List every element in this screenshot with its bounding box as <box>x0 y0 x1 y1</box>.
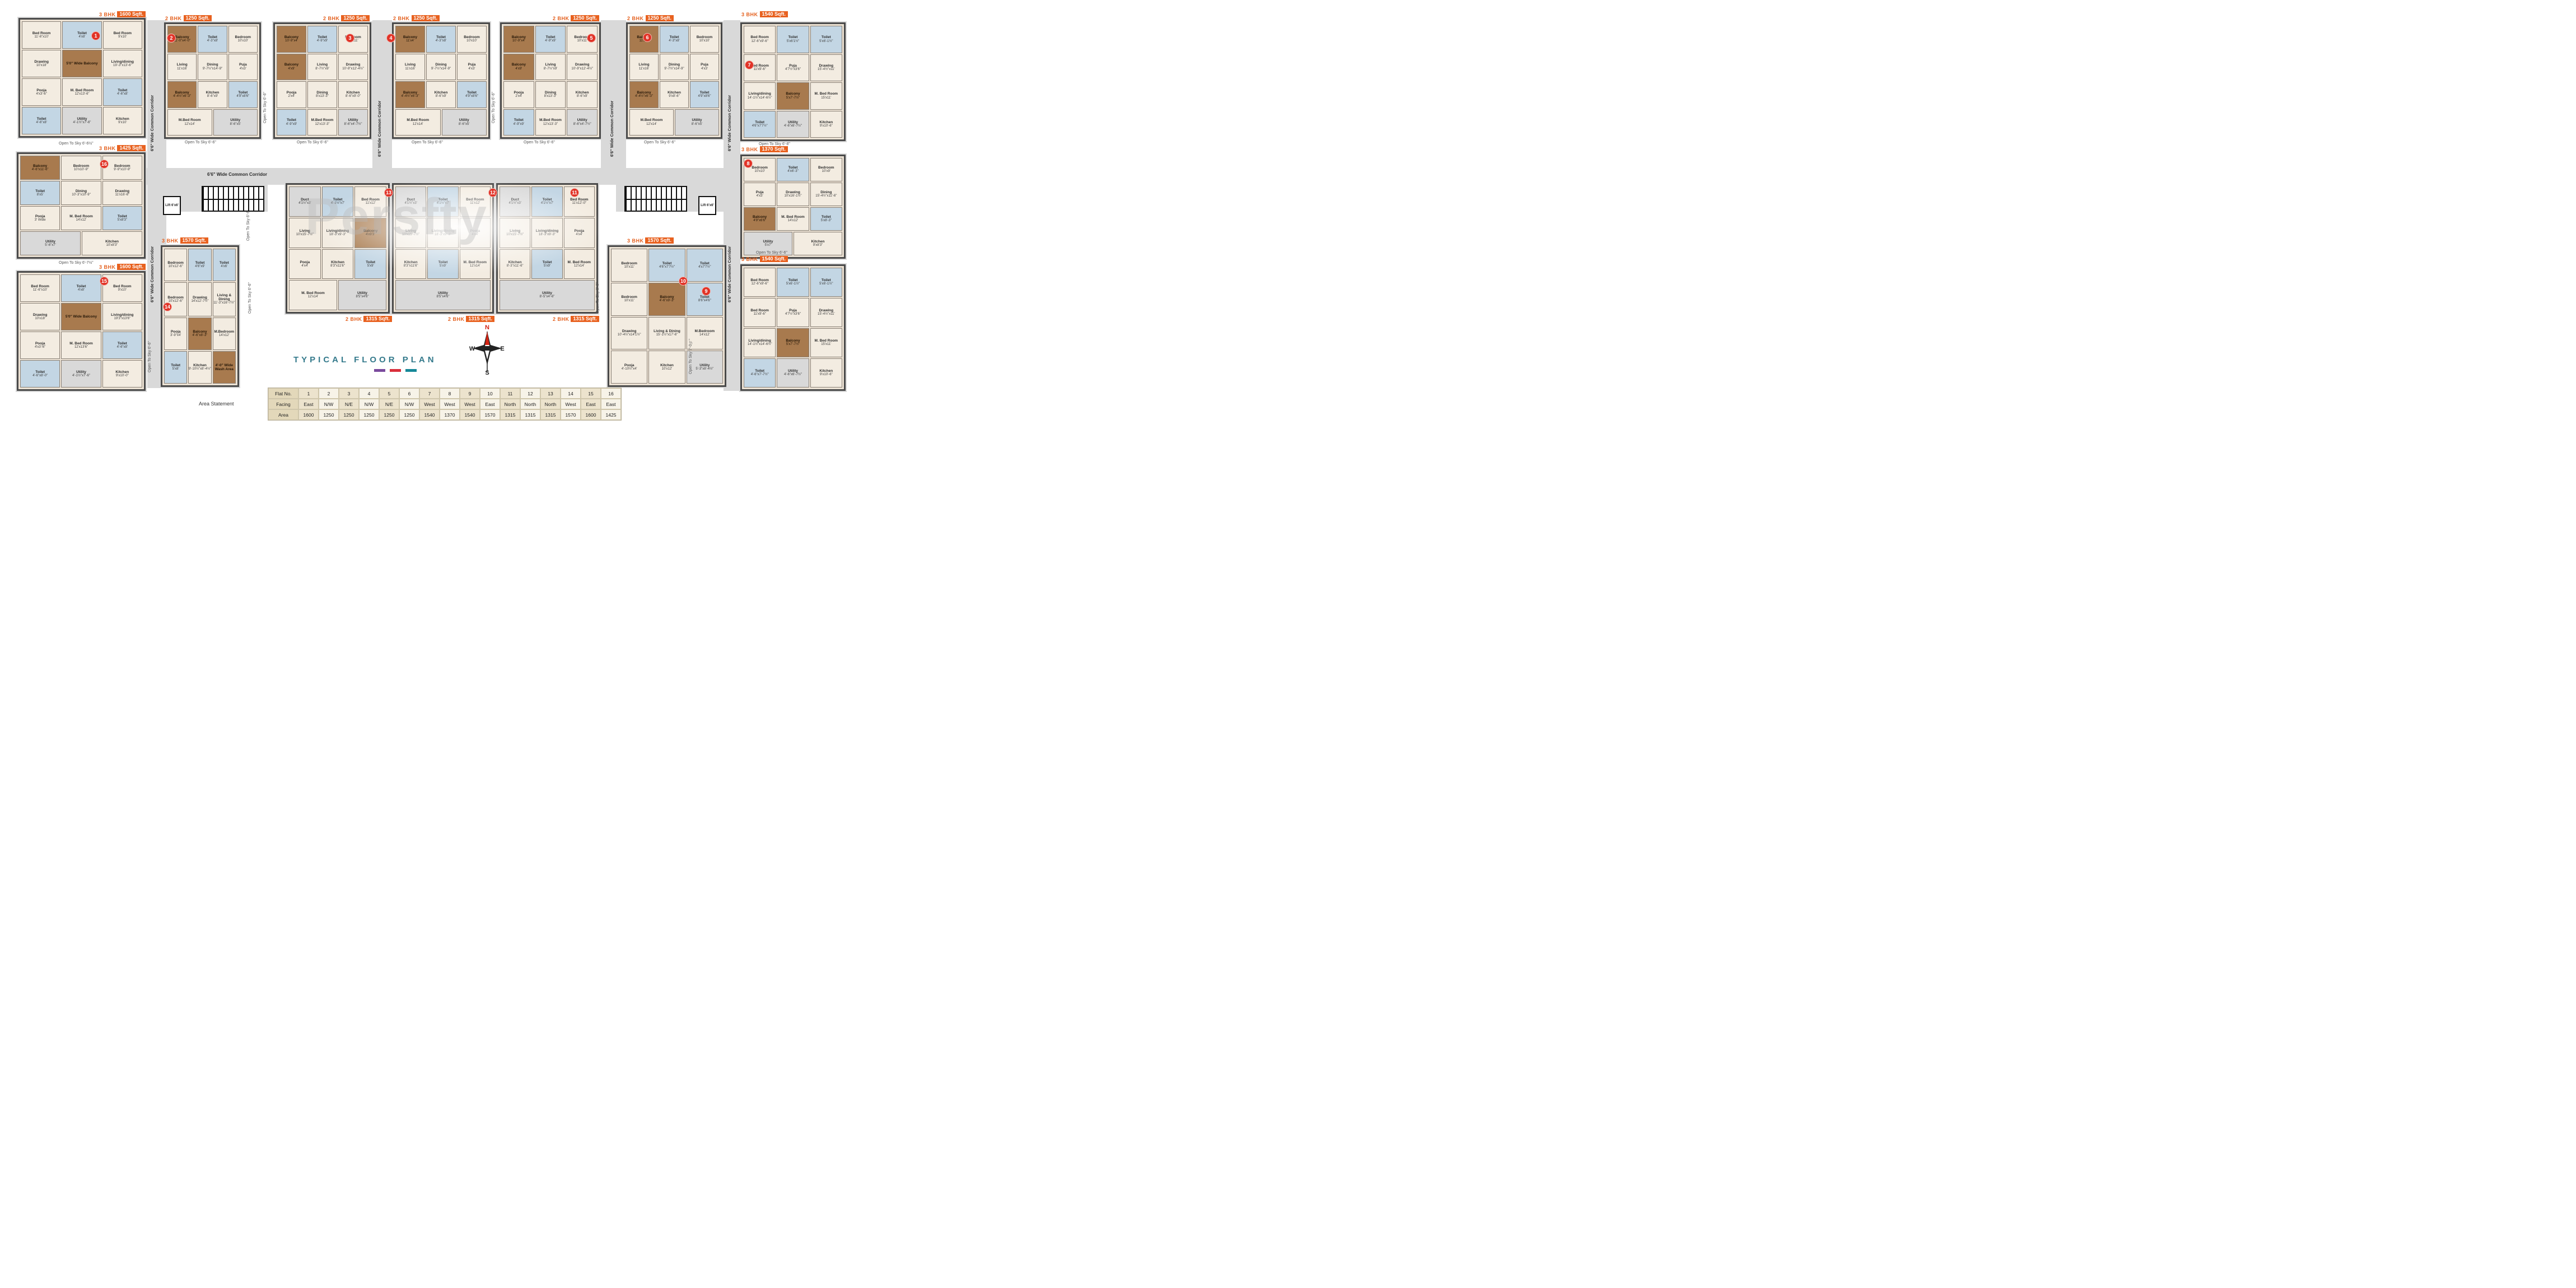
room-dimensions: 4'9"x8'6" <box>698 95 711 99</box>
room-name: Puja <box>239 63 247 67</box>
room-name: Pooja <box>624 363 634 367</box>
room-name: M.Bed Room <box>407 118 429 122</box>
room-utility: Utility4'-6"x6'-7½" <box>777 111 809 138</box>
room-dimensions: 4'-6"x8'-0" <box>32 374 48 378</box>
room-bedroom: Bedroom10'x9' <box>810 158 842 181</box>
unit-type: 3 BHK <box>741 147 758 152</box>
room-utility: Utility8'-6"x4'-7½" <box>567 109 598 136</box>
room-dimensions: 11'x12' <box>366 202 376 206</box>
room-name: Toilet <box>287 118 296 122</box>
room-name: Toilet <box>238 91 248 95</box>
room-dimensions: 4'-1½"x7'-6" <box>72 374 90 378</box>
room-bedroom: Bedroom10'x12'-6" <box>164 249 187 281</box>
room-name: Living/dining <box>536 229 558 233</box>
table-cell: 1600 <box>298 409 319 420</box>
room-dimensions: 12'x14' <box>184 123 195 127</box>
room-dimensions: 12'x14' <box>308 295 319 299</box>
room-drawing: Drawing11'x16'-6" <box>102 181 142 205</box>
room-dimensions: 4'x3'-6" <box>35 346 45 349</box>
open-to-sky-label: Open To Sky 6'-6" <box>148 305 152 372</box>
room-toilet: Toilet5'x6'1½" <box>777 26 809 53</box>
flat-number-badge-13: 13 <box>384 188 393 197</box>
room-dimensions: 8'-7½"x9' <box>315 67 329 71</box>
room-dimensions: 12'x13'-6" <box>74 92 89 96</box>
room-dimensions: 4'-10½"x4' <box>622 367 637 371</box>
table-cell: 1425 <box>601 409 621 420</box>
room-dimensions: 11'x9'-6" <box>754 312 766 316</box>
room-name: Toilet <box>37 117 46 121</box>
room-name: Utility <box>542 291 552 295</box>
page-title: TYPICAL FLOOR PLAN <box>293 355 437 365</box>
unit-sqft-badge: 1315 Sqft. <box>571 316 599 322</box>
room-dimensions: 9'x10'-6" <box>820 373 833 377</box>
unit-9-label: 3 BHK1540 Sqft. <box>741 256 788 262</box>
room-dimensions: 8'-3"x11'-6" <box>507 264 524 268</box>
unit-12-label: 2 BHK1315 Sqft. <box>408 316 494 322</box>
room-name: Toilet <box>118 214 127 218</box>
room-dimensions: 4'1½"x3' <box>298 202 311 206</box>
unit-type: 3 BHK <box>741 256 758 262</box>
table-cell: 6 <box>399 388 419 399</box>
room-name: Balcony <box>786 92 800 96</box>
room-dimensions: 4'-6"x8' <box>117 92 128 96</box>
table-cell: N/E <box>379 399 399 409</box>
room-name: M. Bed Room <box>815 92 838 96</box>
room-dimensions: 10'x18' <box>36 64 47 68</box>
room-dimensions: 4'1½"x7' <box>437 202 449 206</box>
room-name: Dining <box>316 91 328 95</box>
room-name: Living/dining <box>111 60 134 64</box>
unit-type: 2 BHK <box>448 316 465 322</box>
room-dimensions: 8'-6"x9'-0" <box>346 95 361 99</box>
flat-number-badge-6: 6 <box>643 33 652 42</box>
flat-number-badge-4: 4 <box>386 34 395 43</box>
room-kitchen: Kitchen9'-10½"x8'-4½" <box>188 351 211 384</box>
unit-4-rooms: Balcony11'x4'Toilet4'-3"x8'Bedroom10'x10… <box>394 24 488 137</box>
room-kitchen: Kitchen8'-6"x9'-0" <box>338 81 368 108</box>
room-name: Drawing <box>819 64 833 68</box>
room-name: M. Bed Room <box>69 214 93 218</box>
table-cell: 1250 <box>399 409 419 420</box>
room-name: Balcony <box>753 215 767 219</box>
room-toilet: Toilet5'x8'-3" <box>810 207 842 231</box>
unit-15: Bed Room11'-6"x10'Toilet4'x8'Bed Room9'x… <box>17 271 146 391</box>
unit-9-rooms: Bed Room12'-6"x9'-6"Toilet5'x6'-1½"Toile… <box>742 266 844 389</box>
room-m-bed-room: M. Bed Room12'x13'6" <box>61 332 101 359</box>
room-dimensions: 4'-3"x8' <box>207 39 218 43</box>
room-dimensions: 9'-9"x10'-9" <box>114 168 130 172</box>
room-name: M.Bedroom <box>214 330 234 334</box>
room-toilet: Toilet4'x8' <box>61 274 101 302</box>
room-bed-room: Bed Room11'x12' <box>354 186 386 217</box>
table-cell: 1315 <box>540 409 561 420</box>
table-cell: East <box>480 399 500 409</box>
room-dimensions: 18'-3"x9'-3" <box>435 233 451 237</box>
room-dimensions: 18'-3"x9'-3" <box>539 233 556 237</box>
room-dimensions: 11'x12' <box>470 202 480 206</box>
room-toilet: Toilet8'x5' <box>20 181 60 205</box>
unit-10-label: 3 BHK1570 Sqft. <box>587 237 674 244</box>
room-dimensions: 5'x9' <box>544 264 550 268</box>
room-pooja: Pooja4'x4' <box>460 218 491 248</box>
room-dimensions: 4'x7'7½" <box>698 265 711 269</box>
room-name: Toilet <box>77 31 87 35</box>
table-cell: 1 <box>298 388 319 399</box>
room-dimensions: 4'x6'-3" <box>787 170 798 174</box>
room-name: Toilet <box>35 370 45 374</box>
room-name: Pooja <box>470 229 480 233</box>
room-5-0-wide-balcony: 5'0" Wide Balcony <box>61 303 101 330</box>
room-dimensions: 11'x16' <box>177 67 187 71</box>
room-dimensions: 5'x8'-3" <box>821 219 832 223</box>
room-kitchen: Kitchen9'x10'-6" <box>810 358 842 388</box>
room-toilet: Toilet4'-6"x7'-7½" <box>744 358 776 388</box>
room-name: Puja <box>756 190 764 194</box>
room-utility: Utility4'-1½"x7'-6" <box>61 360 101 388</box>
unit-type: 3 BHK <box>741 12 758 17</box>
room-toilet: Toilet4'x6'-3" <box>777 158 809 181</box>
room-bedroom: Bedroom10'x11' <box>611 249 647 282</box>
table-row-header: Facing <box>268 399 298 409</box>
unit-9: Bed Room12'-6"x9'-6"Toilet5'x6'-1½"Toile… <box>740 264 846 391</box>
room-dimensions: 4'x3' <box>701 67 708 71</box>
room-living-dining: Living & Dining15'-1½"x17'-6" <box>648 317 685 350</box>
room-utility: Utility8'-6"x5' <box>442 109 487 136</box>
table-row-header: Area <box>268 409 298 420</box>
title-underline-red <box>390 369 401 372</box>
staircase-left-icon <box>202 186 264 212</box>
table-cell: North <box>540 399 561 409</box>
room-dimensions: 4'1½"x7' <box>541 202 553 206</box>
room-dimensions: 10'x15'-7½" <box>402 233 419 237</box>
room-living: Living11'x16' <box>629 54 659 81</box>
room-dimensions: 15'x11' <box>821 96 831 100</box>
room-name: Bedroom <box>621 262 637 265</box>
room-dining: Dining8'x13'-3" <box>535 81 566 108</box>
room-dimensions: 10'-9"x12'-4½" <box>571 67 593 71</box>
unit-12: Duct4'1½"x3'Toilet4'1½"x7'Bed Room11'x12… <box>392 183 494 314</box>
room-utility: Utility5'-6"x7' <box>20 231 81 255</box>
room-name: Balcony <box>284 63 298 67</box>
room-name: Toilet <box>220 261 229 265</box>
room-living-dining: Living/dining19'3"x13'6" <box>102 303 142 330</box>
room-name: Kitchen <box>116 117 129 121</box>
room-dimensions: 4'-9"x9' <box>514 123 524 127</box>
flat-number-badge-3: 3 <box>346 34 354 43</box>
room-bed-room: Bed Room11'x12'-0" <box>564 186 595 217</box>
room-toilet: Toilet4'-6"x8'-0" <box>20 360 60 388</box>
room-toilet: Toilet4'-1½"x7' <box>322 186 354 217</box>
unit-8-label: 3 BHK1370 Sqft. <box>741 146 788 152</box>
room-dimensions: 11'x16'-6" <box>115 193 129 197</box>
room-balcony: Balcony5'x7'-7½" <box>777 82 809 110</box>
unit-8-rooms: Bedroom10'x10'Toilet4'x6'-3"Bedroom10'x9… <box>742 156 844 257</box>
unit-11-rooms: Duct4'1½"x3'Toilet4'1½"x7'Bed Room11'x12… <box>498 185 596 312</box>
room-kitchen: Kitchen8'-3"x11'-6" <box>500 249 530 279</box>
room-name: M. Bed Room <box>69 342 93 346</box>
room-name: Drawing <box>575 63 590 67</box>
unit-14-rooms: Bedroom10'x12'-6"Toilet4'6"x9'Toilet4'x6… <box>162 247 237 385</box>
room-dimensions: 10'x15'-7½" <box>296 233 314 237</box>
room-balcony: Balcony10'-9"x4' <box>503 26 534 53</box>
room-duct: Duct4'1½"x3' <box>500 186 530 217</box>
room-living-dining: Living/dining14'-1½"x14'-6½" <box>744 82 776 110</box>
room-name: Toilet <box>755 120 764 124</box>
room-name: Living <box>545 63 556 67</box>
room-dimensions: 4'6"x7'7½" <box>752 124 768 128</box>
room-name: Balcony <box>512 35 526 39</box>
room-name: Toilet <box>366 260 375 264</box>
room-living: Living10'x15'-7½" <box>289 218 321 248</box>
corridor-horizontal <box>53 168 724 185</box>
room-name: Toilet <box>171 363 180 367</box>
room-m-bed-room: M.Bed Room12'x14' <box>395 109 441 136</box>
room-m-bed-room: M. Bed Room15'x11' <box>810 82 842 110</box>
room-name: Utility <box>459 118 469 122</box>
corridor-label: 6'6" Wide Common Corridor <box>377 67 382 157</box>
room-puja: Puja4'x3' <box>690 54 719 81</box>
room-balcony: Balcony5'x7'-7½" <box>777 328 809 357</box>
room-kitchen: Kitchen9'x10'-6" <box>810 111 842 138</box>
room-dimensions: 12'x13'-3" <box>315 123 329 127</box>
room-m-bed-room: M. Bed Room12'x14' <box>564 249 595 279</box>
room-m-bed-room: M. Bed Room14'x12' <box>777 207 809 231</box>
flat-number-badge-7: 7 <box>745 60 754 69</box>
room-dimensions: 3' Wide <box>35 218 46 222</box>
room-m-bed-room: M. Bed Room12'x14' <box>460 249 491 279</box>
room-living: Living10'x15'-7½" <box>395 218 426 248</box>
room-utility: Utility4'-1½"x7'-6" <box>62 107 101 134</box>
room-name: Utility <box>45 240 55 244</box>
room-pooja: Pooja4'x4' <box>564 218 595 248</box>
room-dimensions: 14'x12' <box>788 219 799 223</box>
room-name: Bedroom <box>235 35 251 39</box>
room-dimensions: 12'x13'6" <box>74 346 88 349</box>
room-name: Balcony <box>175 91 189 95</box>
room-name: Drawing <box>346 63 361 67</box>
room-utility: Utility4'-6"x6'-7½" <box>777 358 809 388</box>
room-name: Kitchen <box>404 260 418 264</box>
room-dimensions: 9'x10' <box>118 121 127 125</box>
room-dimensions: 15'x11' <box>821 343 831 347</box>
open-to-sky-label: Open To Sky 6'-6" <box>185 141 216 144</box>
room-dimensions: 4'x3' <box>469 67 475 71</box>
room-dimensions: 12'x13'-3" <box>543 123 558 127</box>
room-toilet: Toilet5'x9' <box>531 249 562 279</box>
table-cell: West <box>440 399 460 409</box>
room-pooja: Pooja2'x4' <box>277 81 306 108</box>
room-name: Living & Dining <box>214 293 235 301</box>
room-duct: Duct4'1½"x3' <box>289 186 321 217</box>
room-dimensions: 4'x9' <box>288 67 295 71</box>
room-dimensions: 10'x11' <box>624 299 634 303</box>
room-kitchen: Kitchen8'-6"x9' <box>567 81 598 108</box>
room-dimensions: 9'-7½"x14'-9" <box>664 67 684 71</box>
svg-text:N: N <box>485 324 489 331</box>
room-toilet: Toilet4'9"x8'6" <box>228 81 258 108</box>
room-living-dining: Living & Dining11'-3"x16'-7½" <box>213 282 236 316</box>
unit-5: Balcony10'-9"x4'Toilet4'-9"x9'Bedroom10'… <box>500 22 601 139</box>
room-name: Bedroom <box>752 166 768 170</box>
room-dimensions: 9'x8'-6" <box>669 95 679 99</box>
room-dimensions: 4'9"x8'6" <box>465 95 478 99</box>
room-dimensions: 10'x11' <box>577 39 587 43</box>
room-name: M. Bed Room <box>781 215 805 219</box>
room-name: Kitchen <box>435 91 448 95</box>
room-dining: Dining8'x13'-3" <box>307 81 337 108</box>
unit-11: Duct4'1½"x3'Toilet4'1½"x7'Bed Room11'x12… <box>496 183 598 314</box>
unit-sqft-badge: 1250 Sqft. <box>341 15 370 21</box>
room-pooja: Pooja3' Wide <box>20 206 60 230</box>
room-bedroom: Bedroom10'x11' <box>611 283 647 316</box>
room-dimensions: 5'x7'-7½" <box>786 343 800 347</box>
unit-sqft-badge: 1540 Sqft. <box>760 256 788 262</box>
open-to-sky-label: Open To Sky 6'-6" <box>263 56 267 123</box>
room-dimensions: 11'-0"x4'-0" <box>174 39 190 43</box>
room-balcony: Balcony4'x9' <box>503 54 534 81</box>
table-cell: 1315 <box>520 409 540 420</box>
room-name: Kitchen <box>347 91 360 95</box>
room-name: Balcony <box>193 330 207 334</box>
room-balcony: Balcony4'-4½"x6'-3" <box>167 81 197 108</box>
room-dimensions: 12'x14' <box>470 264 480 268</box>
room-dimensions: 14'-1½"x14'-6½" <box>748 96 772 100</box>
area-statement-label: Area Statement <box>199 401 234 407</box>
room-dimensions: 5'x6'-1½" <box>819 40 833 44</box>
room-utility: Utility8'-6"x4'-7½" <box>338 109 368 136</box>
room-name: Puja <box>468 63 476 67</box>
room-dimensions: 12'x14' <box>646 123 657 127</box>
table-cell: 1540 <box>419 409 440 420</box>
room-dimensions: 5'x7'-7½" <box>786 96 800 100</box>
unit-10-rooms: Bedroom10'x11'Toilet4'6"x7'7½"Toilet4'x7… <box>609 247 725 385</box>
room-dimensions: 5'x6'1½" <box>787 40 799 44</box>
room-toilet: Toilet4'-6"x8' <box>22 107 61 134</box>
room-living-dining: Living/dining18'-3"x9'-3" <box>531 218 562 248</box>
room-dimensions: 4'-1½"x7'-6" <box>73 121 91 125</box>
unit-sqft-badge: 1370 Sqft. <box>760 146 788 152</box>
room-name: Living/dining <box>111 313 133 317</box>
table-cell: 1570 <box>480 409 500 420</box>
room-living: Living8'-7½"x9' <box>307 54 337 81</box>
table-cell: East <box>298 399 319 409</box>
unit-type: 2 BHK <box>627 16 644 21</box>
room-name: Dining <box>435 63 446 67</box>
room-name: Dining <box>207 63 218 67</box>
table-cell: 1600 <box>581 409 601 420</box>
room-dimensions: 5'x9' <box>440 264 446 268</box>
room-name: Living <box>300 229 310 233</box>
room-name: Balcony <box>403 35 417 39</box>
unit-1: Bed Room11'-6"x10'Toilet4'x8'Bed Room9'x… <box>18 18 146 138</box>
room-dimensions: 4'-6"x8'-3" <box>193 334 208 338</box>
room-dimensions: 4'x3' <box>757 194 763 198</box>
room-balcony: Balcony4'-6"x11'-6" <box>20 156 60 180</box>
table-cell: West <box>460 399 480 409</box>
room-name: Living <box>405 229 416 233</box>
room-pooja: Pooja4'x4' <box>289 249 321 279</box>
room-dimensions: 8'x13'-3" <box>316 95 329 99</box>
room-dimensions: 15'-4½"x11'-6" <box>815 194 837 198</box>
open-to-sky-label: Open To Sky 6'-7½" <box>59 261 94 265</box>
room-dimensions: 10'x16'-1½" <box>784 194 801 198</box>
room-dimensions: 5'x9' <box>367 264 374 268</box>
room-name: Pooja <box>35 214 45 218</box>
room-dimensions: 15'-4½"x11' <box>818 68 835 72</box>
room-pooja: Pooja3'-9"x4' <box>164 318 187 350</box>
room-name: Kitchen <box>206 91 220 95</box>
unit-sqft-badge: 1570 Sqft. <box>180 237 209 244</box>
room-dimensions: 4'x6' <box>221 265 227 269</box>
room-dimensions: 10'x12' <box>662 367 673 371</box>
room-balcony: Balcony4'-4½"x6'-3" <box>629 81 659 108</box>
room-name: Living/dining <box>748 92 771 96</box>
flat-number-badge-11: 11 <box>570 188 579 197</box>
room-dimensions: 4'-6"x7'-7½" <box>751 373 769 377</box>
room-name: Toilet <box>318 35 327 39</box>
room-name: Utility <box>438 291 448 295</box>
room-name: Living <box>510 229 520 233</box>
table-cell: 16 <box>601 388 621 399</box>
room-dimensions: 10'-4½"x14'1½" <box>618 333 641 337</box>
room-m-bed-room: M. Bed Room12'x14' <box>289 280 337 310</box>
unit-16-rooms: Balcony4'-6"x11'-6"Bedroom10'x10'-9"Bedr… <box>18 154 144 257</box>
room-dimensions: 10'x10' <box>238 39 249 43</box>
unit-4-label: 2 BHK1250 Sqft. <box>393 15 440 21</box>
unit-sqft-badge: 1600 Sqft. <box>117 11 146 17</box>
unit-16: Balcony4'-6"x11'-6"Bedroom10'x10'-9"Bedr… <box>17 152 146 259</box>
table-cell: 1570 <box>561 409 581 420</box>
room-dimensions: 8'-6"x4'-7½" <box>344 123 362 127</box>
table-cell: N/W <box>319 399 339 409</box>
room-dimensions: 14'x12' <box>219 334 230 338</box>
unit-sqft-badge: 1315 Sqft. <box>466 316 494 322</box>
room-name: Pooja <box>36 88 46 92</box>
room-name: Bedroom <box>114 164 130 168</box>
unit-type: 2 BHK <box>165 16 182 21</box>
flat-number-badge-8: 8 <box>744 159 753 168</box>
room-bedroom: Bedroom10'x10' <box>690 26 719 53</box>
room-bed-room: Bed Room9'x10' <box>103 21 142 49</box>
room-dimensions: 4'x4' <box>301 264 308 268</box>
unit-14-label: 3 BHK1570 Sqft. <box>162 237 208 244</box>
room-name: Pooja <box>287 91 297 95</box>
room-name: Bedroom <box>464 35 480 39</box>
room-toilet: Toilet4'-6"x8' <box>102 332 142 359</box>
room-kitchen: Kitchen9'x8'-6" <box>660 81 689 108</box>
unit-7-label: 3 BHK1540 Sqft. <box>741 11 788 17</box>
room-dining: Dining15'-4½"x11'-6" <box>810 183 842 206</box>
room-dimensions: 8'5"x4'6" <box>356 295 369 299</box>
room-name: M.Bed Room <box>311 118 334 122</box>
room-dimensions: 18'-3"x9'-3" <box>329 233 346 237</box>
room-dimensions: 8'-6"x5' <box>459 123 469 127</box>
room-name: Balcony <box>363 229 377 233</box>
room-name: Bed Room <box>750 309 769 312</box>
room-name: Toilet <box>822 35 831 39</box>
room-dimensions: 14'x12' <box>76 218 87 222</box>
room-name: M.Bed Room <box>179 118 201 122</box>
room-dimensions: 8'-6"x4'-7½" <box>573 123 591 127</box>
room-dimensions: 5'x7' <box>765 244 772 248</box>
room-name: Living/dining <box>432 229 454 233</box>
room-toilet: Toilet5'x6'-1½" <box>810 268 842 297</box>
unit-2-label: 2 BHK1250 Sqft. <box>165 15 212 21</box>
room-dimensions: 10'x18' <box>35 317 45 321</box>
room-name: Toilet <box>543 260 552 264</box>
room-dimensions: 10'-9"x4' <box>512 39 525 43</box>
flat-number-badge-10: 10 <box>679 277 688 286</box>
